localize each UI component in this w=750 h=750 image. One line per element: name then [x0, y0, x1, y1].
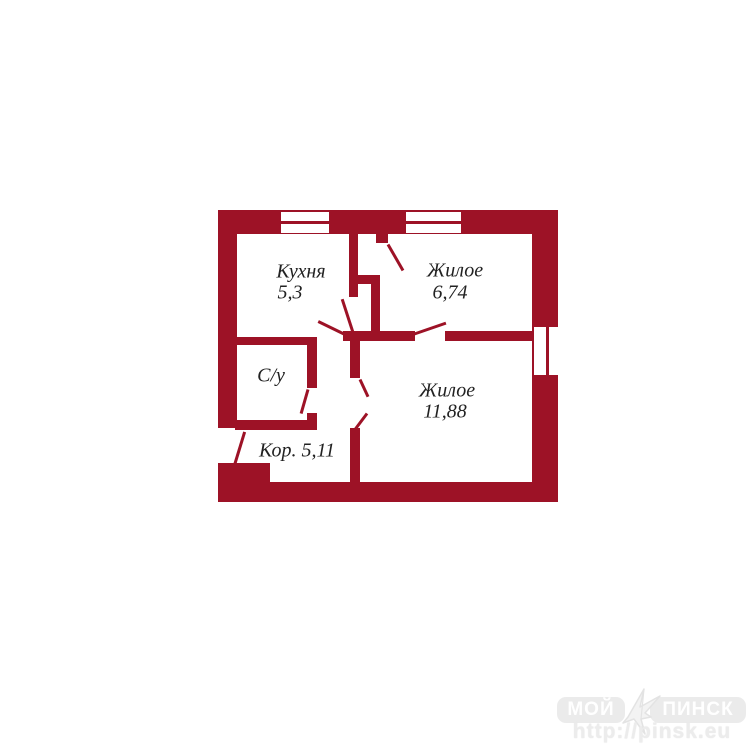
door-swing-bathroom [300, 389, 310, 414]
door-swing-kitchen-b [341, 299, 355, 333]
page: Кухня 5,3 Жилое 6,74 С/у Жилое 11,88 Кор… [0, 0, 750, 750]
door-swing-entrance [234, 432, 247, 464]
wall-bathroom-bottom [235, 420, 317, 430]
room-area-living-large: 11,88 [423, 402, 467, 423]
room-area: 5,3 [278, 283, 303, 304]
wall-bottom [218, 482, 558, 502]
room-label-living-large: Жилое [419, 381, 475, 402]
wall-bathroom-top [235, 337, 315, 345]
watermark-brand-left: МОЙ [567, 699, 614, 721]
room-area: 6,74 [433, 283, 468, 304]
room-name: С/у [257, 366, 285, 387]
door-swing-room-small [410, 322, 447, 337]
door-swing-living-bottom [354, 413, 368, 431]
window-frame [281, 221, 329, 224]
wall-bathroom-right [307, 337, 317, 388]
watermark-brand-right: ПИНСК [662, 699, 733, 721]
wall-top [218, 210, 558, 234]
door-swing-closet [387, 244, 405, 271]
room-label-living-small: Жилое [427, 261, 483, 282]
room-area-living-small: 6,74 [433, 283, 468, 304]
door-swing-living-top [359, 379, 370, 397]
room-label-bathroom: С/у [257, 366, 285, 387]
window-right [534, 327, 561, 375]
wall-kitchen-right [349, 234, 358, 297]
room-area: 5,11 [302, 440, 336, 462]
window-frame [406, 221, 461, 224]
wall-room-small-bottom [445, 331, 532, 341]
wall-center-vertical-low [350, 428, 360, 482]
room-label-corridor: Кор. 5,11 [259, 441, 335, 462]
room-name: Кор. [259, 440, 297, 462]
wall-room-small-left [371, 275, 380, 332]
room-label-kitchen: Кухня [276, 262, 325, 283]
room-area: 11,88 [423, 402, 467, 423]
window-frame [546, 327, 549, 375]
room-name: Жилое [419, 381, 475, 402]
wall-closet-nub [376, 234, 388, 243]
door-swing-kitchen-a [318, 320, 348, 337]
wall-center-horizontal [343, 331, 415, 341]
window-top-right [406, 212, 461, 233]
wall-center-vertical-mid [350, 341, 360, 378]
room-area-kitchen: 5,3 [278, 283, 303, 304]
room-name: Жилое [427, 261, 483, 282]
watermark-url: http://pinsk.eu [573, 720, 732, 744]
room-name: Кухня [276, 262, 325, 283]
wall-left [218, 210, 237, 428]
window-top-left [281, 212, 329, 233]
